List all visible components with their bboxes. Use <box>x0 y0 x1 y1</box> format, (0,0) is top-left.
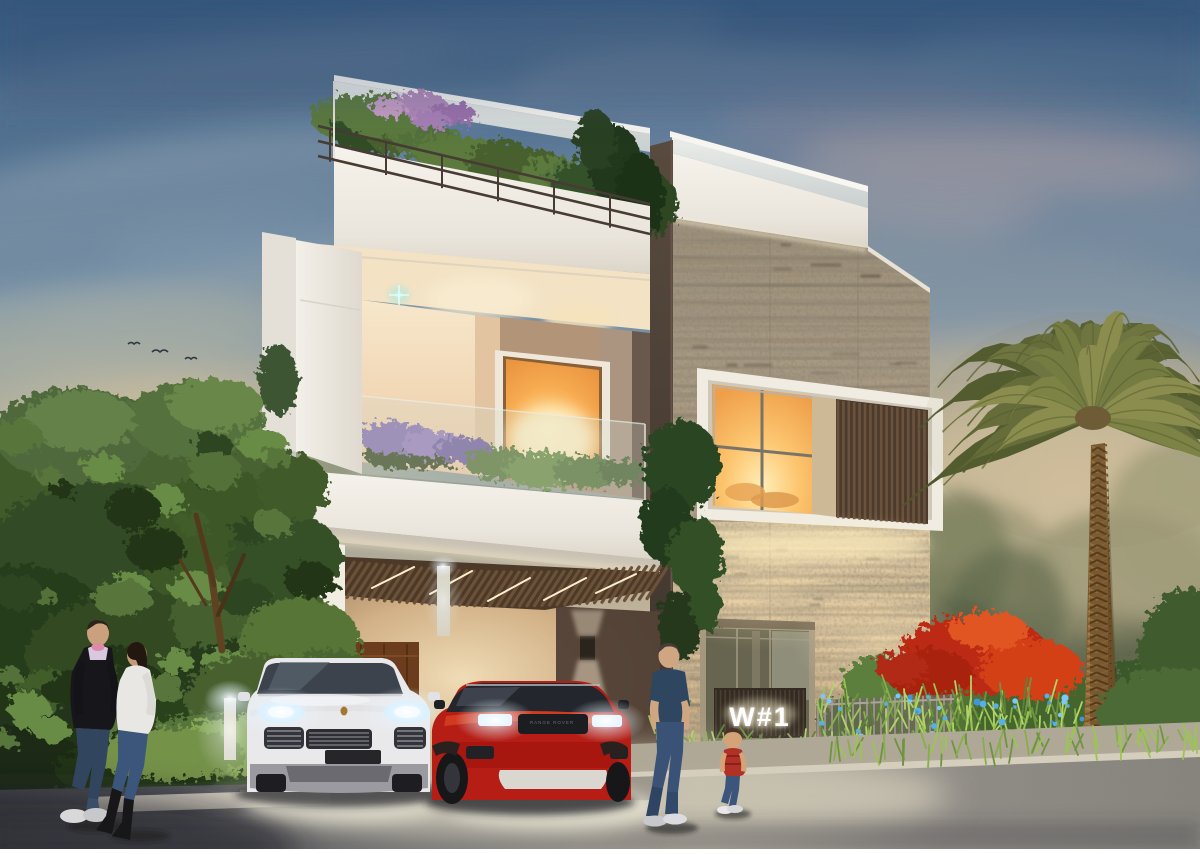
svg-text:RANGE ROVER: RANGE ROVER <box>530 720 574 725</box>
svg-text:W#1: W#1 <box>729 702 791 732</box>
